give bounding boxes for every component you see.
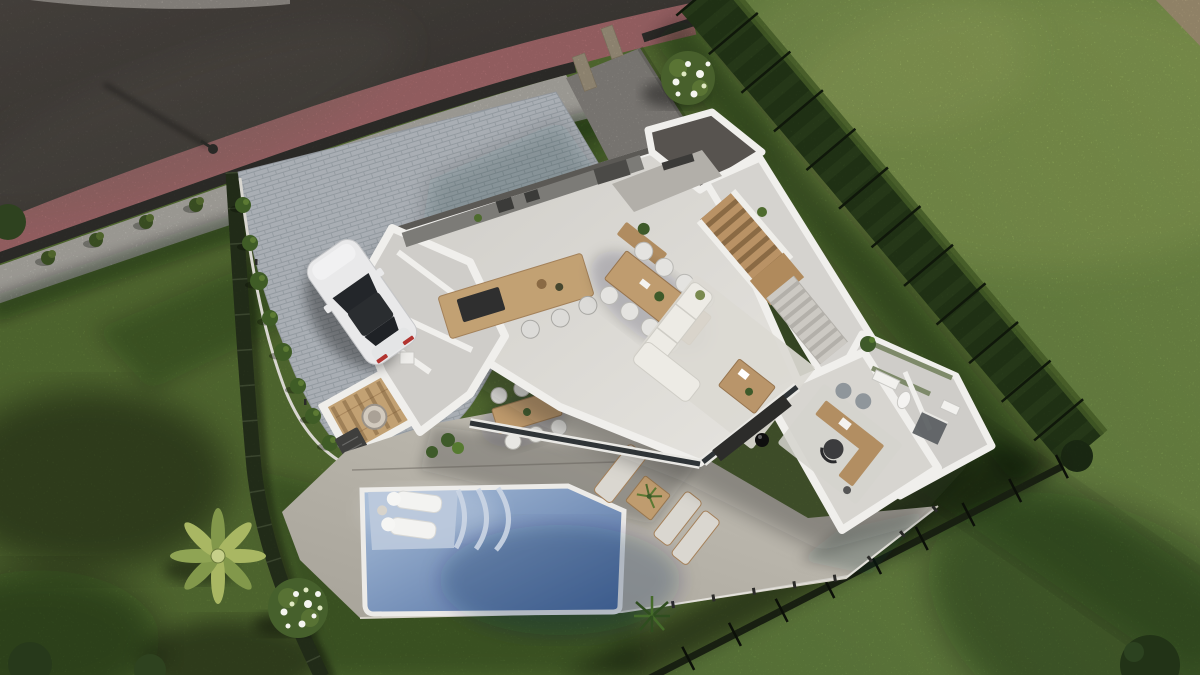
bollard-light — [255, 259, 258, 265]
corner-bush-leaf — [1124, 642, 1144, 662]
stair-plant — [757, 207, 767, 217]
sphere-lamp — [755, 433, 769, 447]
palm-crown — [211, 549, 225, 563]
appliance — [400, 352, 414, 364]
aerial-render — [0, 0, 1200, 675]
hall-plant-leaf — [869, 337, 875, 343]
counter-plant — [474, 214, 482, 222]
bollard-light — [304, 399, 307, 405]
water-deep-shade — [440, 525, 680, 635]
sphere-lamp-highlight — [758, 435, 762, 439]
render-viewport — [0, 0, 1200, 675]
